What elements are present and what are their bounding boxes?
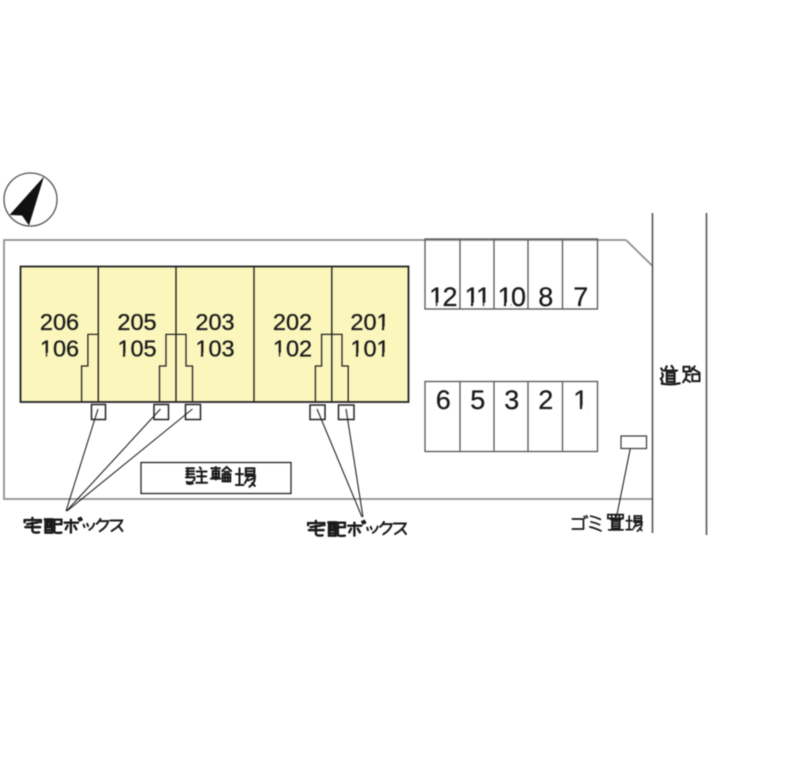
svg-text:206: 206: [40, 309, 79, 335]
svg-text:202: 202: [273, 309, 312, 335]
svg-text:205: 205: [117, 309, 156, 335]
svg-text:5: 5: [470, 385, 484, 415]
svg-text:201: 201: [350, 309, 389, 335]
svg-text:6: 6: [436, 385, 450, 415]
svg-text:103: 103: [195, 336, 234, 362]
svg-text:2: 2: [538, 385, 552, 415]
svg-text:101: 101: [350, 336, 389, 362]
svg-text:203: 203: [195, 309, 234, 335]
svg-text:7: 7: [573, 282, 587, 312]
svg-text:105: 105: [117, 336, 156, 362]
svg-text:8: 8: [538, 282, 552, 312]
svg-text:3: 3: [504, 385, 518, 415]
